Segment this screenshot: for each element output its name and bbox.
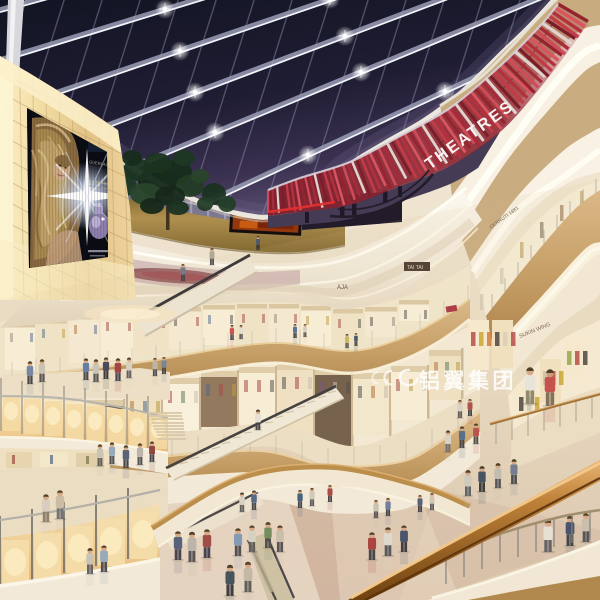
- svg-text:铝翼集团: 铝翼集团: [419, 369, 517, 393]
